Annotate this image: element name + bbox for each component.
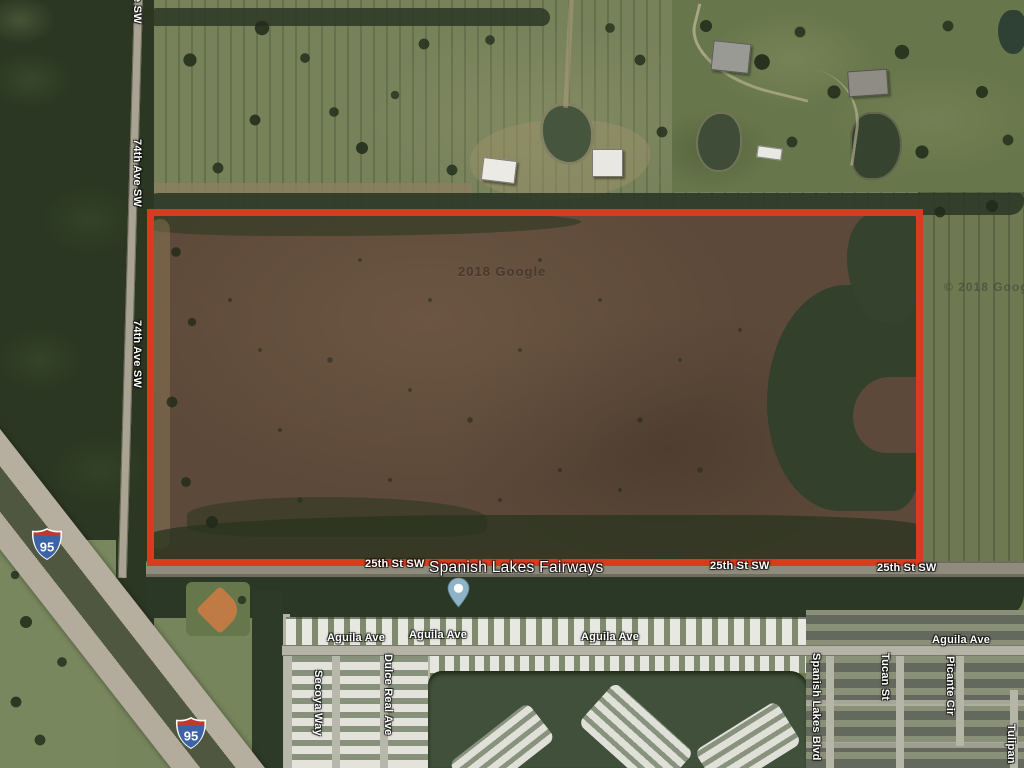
mobile-home-block-west <box>284 654 430 768</box>
satellite-map-canvas[interactable]: 2018 Google © 2018 Google 95 95 e SW 74t… <box>0 0 1024 768</box>
road-label-74th-partial: e SW <box>131 0 143 24</box>
shield-number: 95 <box>40 540 54 555</box>
road-label-secoya-way: Secoya Way <box>312 670 324 736</box>
road-label-25th-st-sw: 25th St SW <box>365 558 424 570</box>
road-label-aguila-ave: Aguila Ave <box>327 632 385 644</box>
farmland-east-strip <box>918 192 1024 578</box>
farm-barn <box>592 149 623 177</box>
pond-top-right-corner <box>998 10 1024 54</box>
road-label-25th-st-sw: 25th St SW <box>710 560 769 572</box>
road-label-aguila-ave: Aguila Ave <box>581 631 639 643</box>
place-pin-icon[interactable] <box>447 577 470 608</box>
cross-street <box>806 700 1024 706</box>
road-label-picante-cir: Picante Cir <box>944 656 956 716</box>
road-label-74th-ave-sw: 74th Ave SW <box>131 320 143 388</box>
shield-number: 95 <box>184 729 198 744</box>
cross-street <box>806 742 1024 748</box>
farm-barn <box>481 157 518 184</box>
road-label-74th-ave-sw: 74th Ave SW <box>131 139 143 207</box>
google-watermark-partial: © 2018 Google <box>944 280 1024 294</box>
road-label-dulce-real-ave: Dulce Real Ave <box>382 654 394 735</box>
parcel-boundary-outline <box>147 209 923 566</box>
place-label-spanish-lakes-fairways[interactable]: Spanish Lakes Fairways <box>429 559 604 577</box>
estate-house <box>711 40 752 74</box>
street-tucan-st <box>896 654 904 768</box>
road-label-25th-st-sw: 25th St SW <box>877 562 936 574</box>
tree-row-top <box>150 8 550 26</box>
road-label-tucan-st: Tucan St <box>879 653 891 700</box>
google-watermark: 2018 Google <box>458 264 546 279</box>
tree-column <box>252 590 283 768</box>
estate-pond <box>696 112 742 172</box>
road-label-aguila-ave: Aguila Ave <box>409 629 467 641</box>
estate-house <box>847 69 889 98</box>
street-spanish-lakes-blvd <box>826 654 834 768</box>
road-label-tulipan: Tulipan <box>1005 724 1017 764</box>
interstate-95-shield: 95 <box>175 716 207 750</box>
interstate-95-shield: 95 <box>31 527 63 561</box>
road-label-aguila-ave: Aguila Ave <box>932 634 990 646</box>
road-label-spanish-lakes-blvd: Spanish Lakes Blvd <box>810 653 822 761</box>
